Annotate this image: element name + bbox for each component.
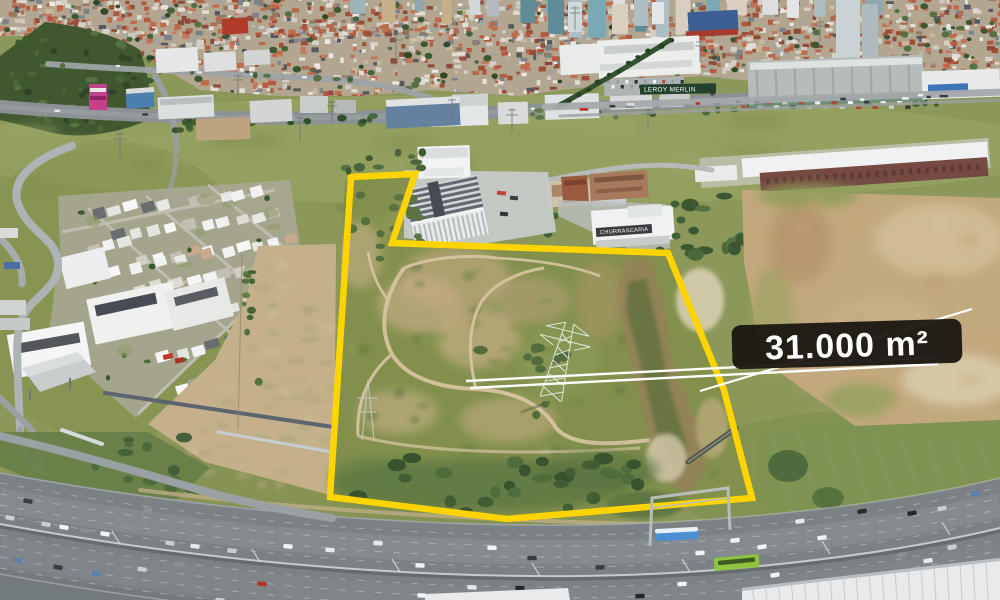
svg-text:LEROY MERLIN: LEROY MERLIN <box>644 87 696 94</box>
svg-text:31.000 m²: 31.000 m² <box>765 325 930 368</box>
